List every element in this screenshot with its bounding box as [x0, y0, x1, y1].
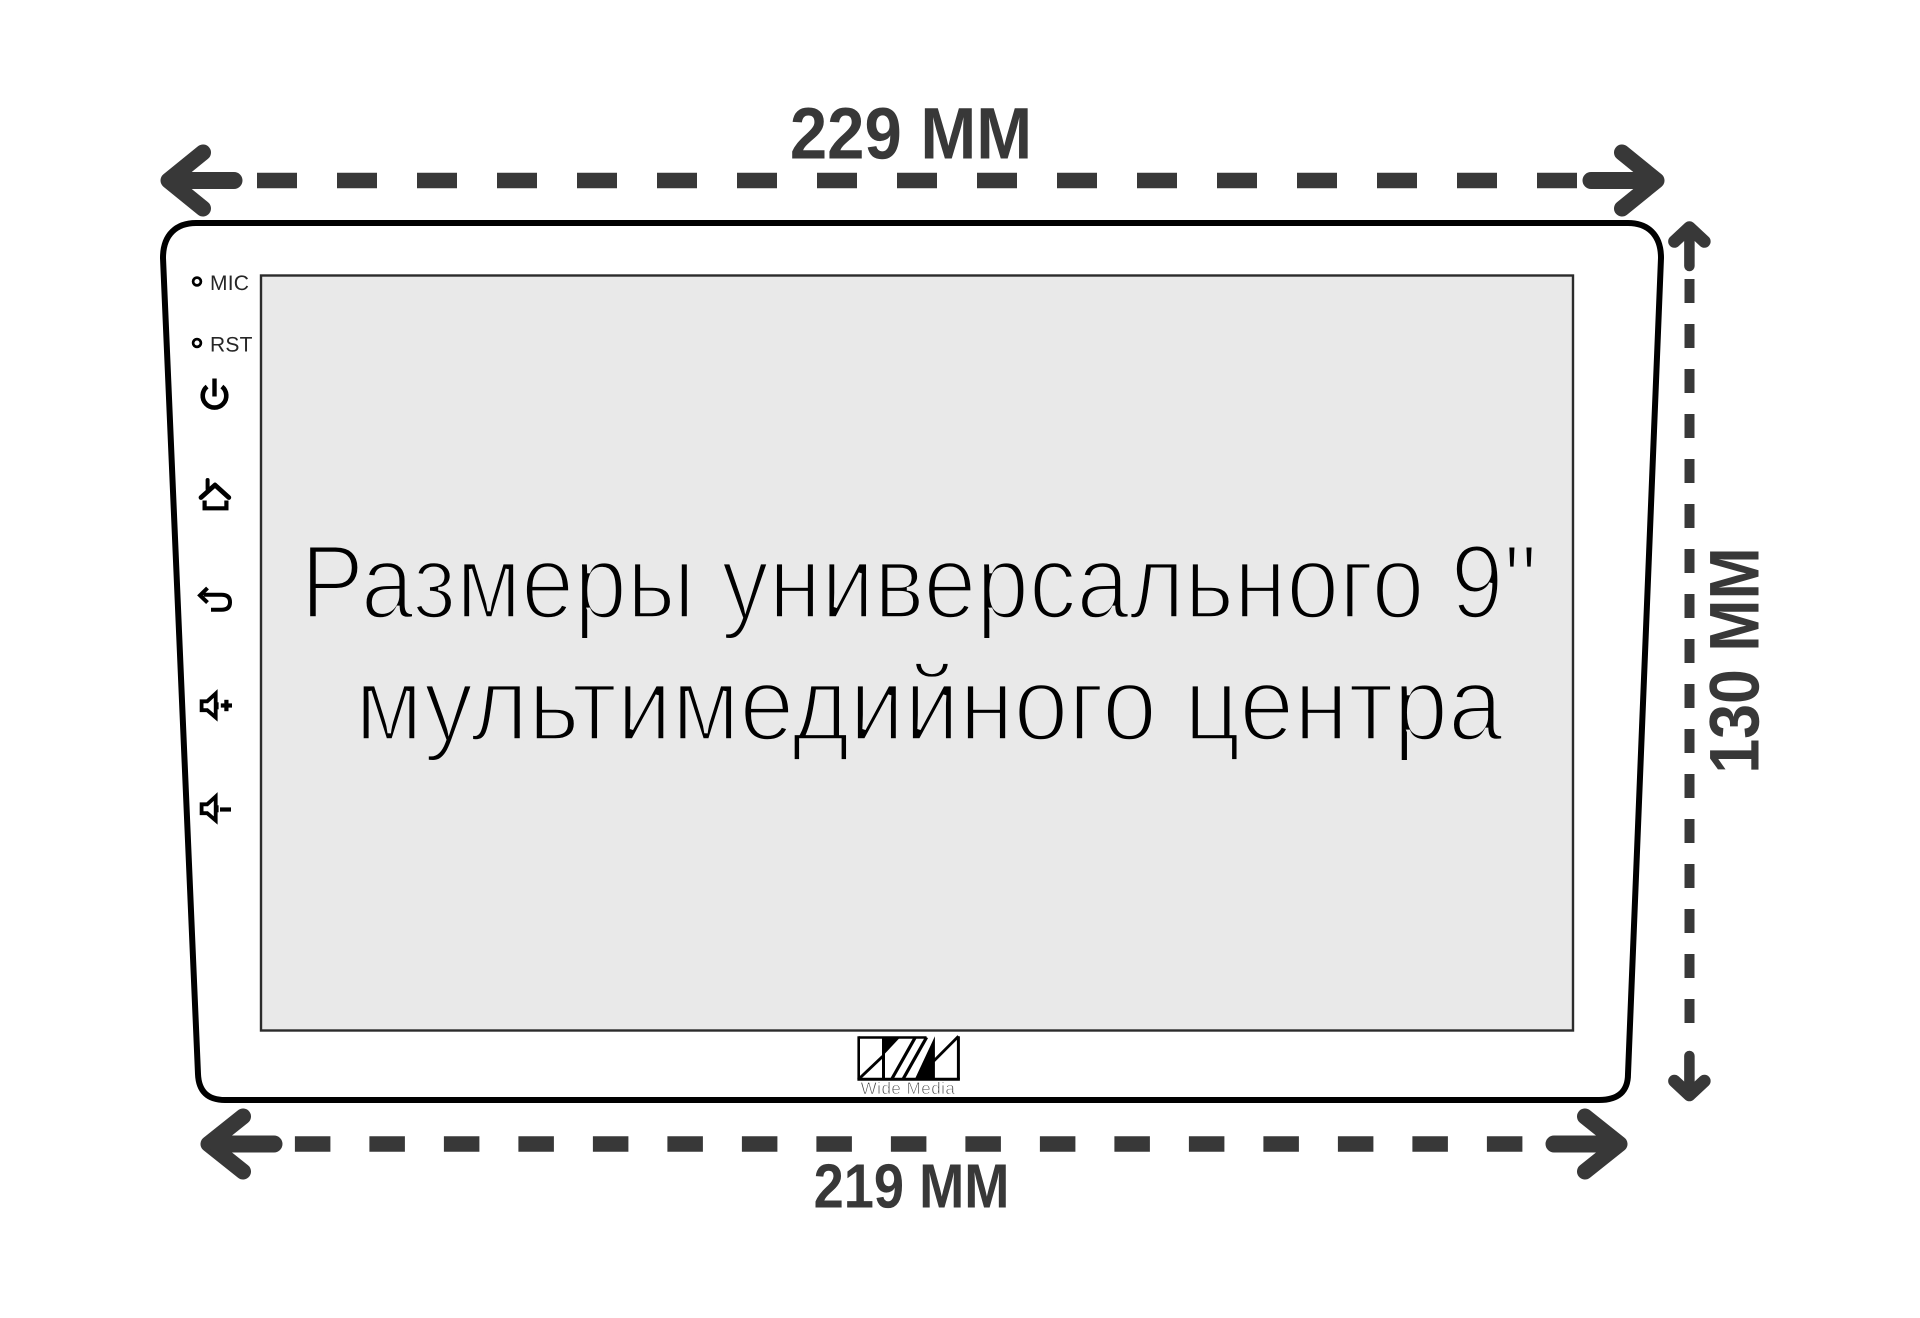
- svg-text:130 MM: 130 MM: [1695, 547, 1774, 773]
- svg-text:RST: RST: [210, 334, 253, 357]
- svg-text:229 MM: 229 MM: [790, 94, 1032, 175]
- svg-text:MIC: MIC: [210, 272, 249, 295]
- svg-text:мультимедийного центра: мультимедийного центра: [355, 646, 1503, 763]
- svg-text:Wide Media: Wide Media: [861, 1079, 956, 1098]
- svg-text:219 MM: 219 MM: [814, 1152, 1010, 1222]
- svg-text:Размеры универсального 9": Размеры универсального 9": [301, 524, 1537, 641]
